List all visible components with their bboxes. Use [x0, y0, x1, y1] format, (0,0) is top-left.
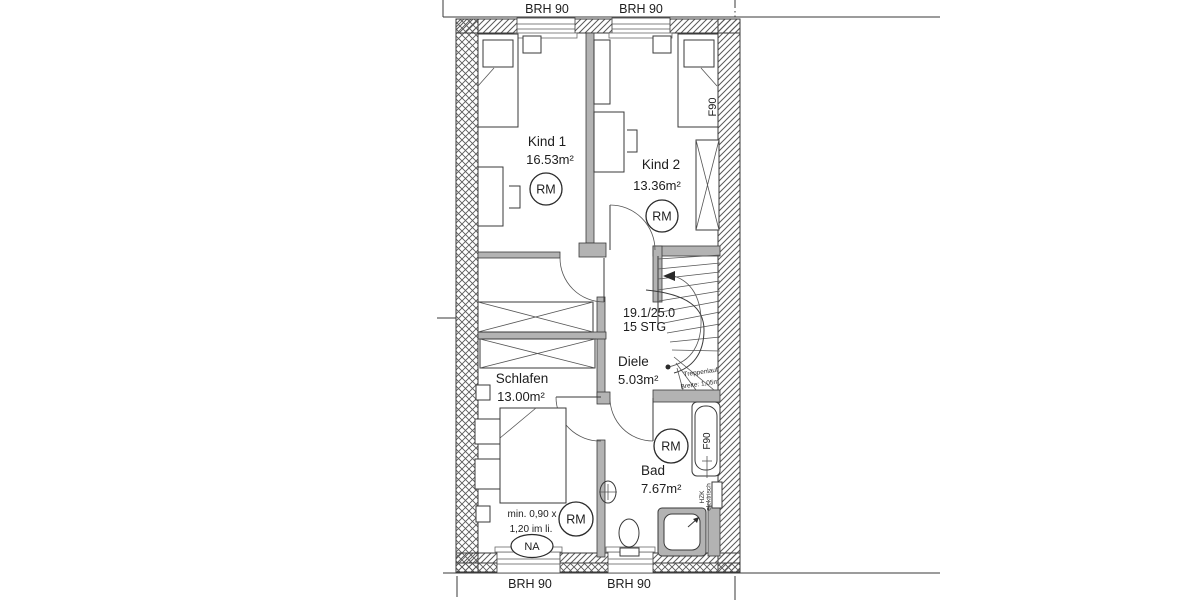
- radiator-schlafen-2: [476, 506, 490, 522]
- window-kind1: [514, 18, 577, 38]
- room-name-bad: Bad: [641, 463, 665, 478]
- bed-kind1: [478, 34, 518, 127]
- room-name-kind1: Kind 1: [528, 134, 566, 149]
- nightstand-kind2: [653, 36, 671, 53]
- brh-bottom-right-label: BRH 90: [607, 577, 651, 591]
- na-label: NA: [524, 541, 540, 553]
- f90-label-bath: F90: [702, 432, 713, 450]
- rm-marker-kind1: RM: [530, 173, 562, 205]
- wall-schlafen-diele: [597, 297, 605, 397]
- rm-label: RM: [661, 440, 680, 454]
- stair-direction-arrow-icon: [663, 271, 675, 281]
- wall-shower-duct: [708, 506, 720, 556]
- wardrobe-schlafen-north: [478, 302, 593, 332]
- shelf-kind2: [594, 40, 610, 104]
- wall-bad-jamb: [597, 392, 610, 404]
- wardrobe-schlafen-south: [480, 339, 595, 368]
- floorplan-drawing: RM RM RM RM BRH 90 BRH 90 BRH 90 BRH 90 …: [0, 0, 1200, 600]
- chair-kind2: [627, 130, 637, 152]
- rm-label: RM: [566, 513, 585, 527]
- room-name-schlafen: Schlafen: [496, 371, 549, 386]
- room-area-kind1: 16.53m²: [526, 152, 574, 167]
- stair-walkline-start-dot: [666, 365, 671, 370]
- radiator-schlafen-1: [476, 385, 490, 400]
- brh-top-left-label: BRH 90: [525, 2, 569, 16]
- elektrisch-label: elektrisch: [706, 483, 713, 511]
- escape-window-note-1: min. 0,90 x: [508, 509, 557, 520]
- stair-steps-label: 15 STG: [623, 320, 666, 334]
- stair-walk-line: [663, 271, 701, 370]
- bathroom-fixtures: [599, 402, 722, 556]
- stair-width-note-2: Breite: 1,05m: [680, 378, 719, 390]
- rm-label: RM: [536, 183, 555, 197]
- f90-label-kind2: F90: [707, 98, 719, 117]
- rm-label: RM: [652, 210, 671, 224]
- nightstand-schlafen-1: [475, 419, 500, 444]
- desk-kind2: [594, 112, 624, 172]
- room-name-kind2: Kind 2: [642, 157, 680, 172]
- desk-kind1: [478, 167, 503, 226]
- wall-kind1-south: [478, 252, 560, 258]
- room-area-schlafen: 13.00m²: [497, 389, 545, 404]
- bed-schlafen: [500, 408, 566, 503]
- nightstand-kind1: [523, 36, 541, 53]
- floorplan-page: RM RM RM RM BRH 90 BRH 90 BRH 90 BRH 90 …: [0, 0, 1200, 600]
- na-marker: NA: [511, 535, 553, 558]
- rm-marker-schlafen: RM: [559, 502, 593, 536]
- window-kind2: [609, 18, 672, 38]
- wall-kind1-foot: [579, 243, 606, 257]
- wardrobe-kind2: [696, 140, 719, 230]
- rm-marker-bad: RM: [654, 429, 688, 463]
- brh-bottom-left-label: BRH 90: [508, 577, 552, 591]
- wall-kind1-kind2: [586, 33, 594, 243]
- wall-wardrobe-divider: [478, 332, 606, 339]
- chair-kind1: [509, 186, 520, 208]
- rm-marker-kind2: RM: [646, 200, 678, 232]
- shower: [658, 508, 706, 556]
- stair-ratio-label: 19.1/25.0: [623, 306, 675, 320]
- wall-stairs-bad: [653, 390, 720, 402]
- door-bad: [610, 398, 653, 441]
- electric-radiator: [712, 482, 722, 508]
- door-kind1: [560, 258, 604, 302]
- brh-top-right-label: BRH 90: [619, 2, 663, 16]
- escape-window-note-2: 1,20 im li.: [510, 524, 553, 535]
- toilet: [619, 519, 639, 556]
- room-name-diele: Diele: [618, 354, 649, 369]
- room-area-kind2: 13.36m²: [633, 178, 681, 193]
- stair-width-note-1: Treppenlauf: [683, 367, 718, 379]
- wall-kind2-stairs: [653, 246, 720, 256]
- sink: [599, 481, 617, 503]
- room-area-diele: 5.03m²: [618, 372, 659, 387]
- nightstand-schlafen-2: [475, 459, 500, 489]
- top-wall: [456, 19, 740, 33]
- room-area-bad: 7.67m²: [641, 481, 682, 496]
